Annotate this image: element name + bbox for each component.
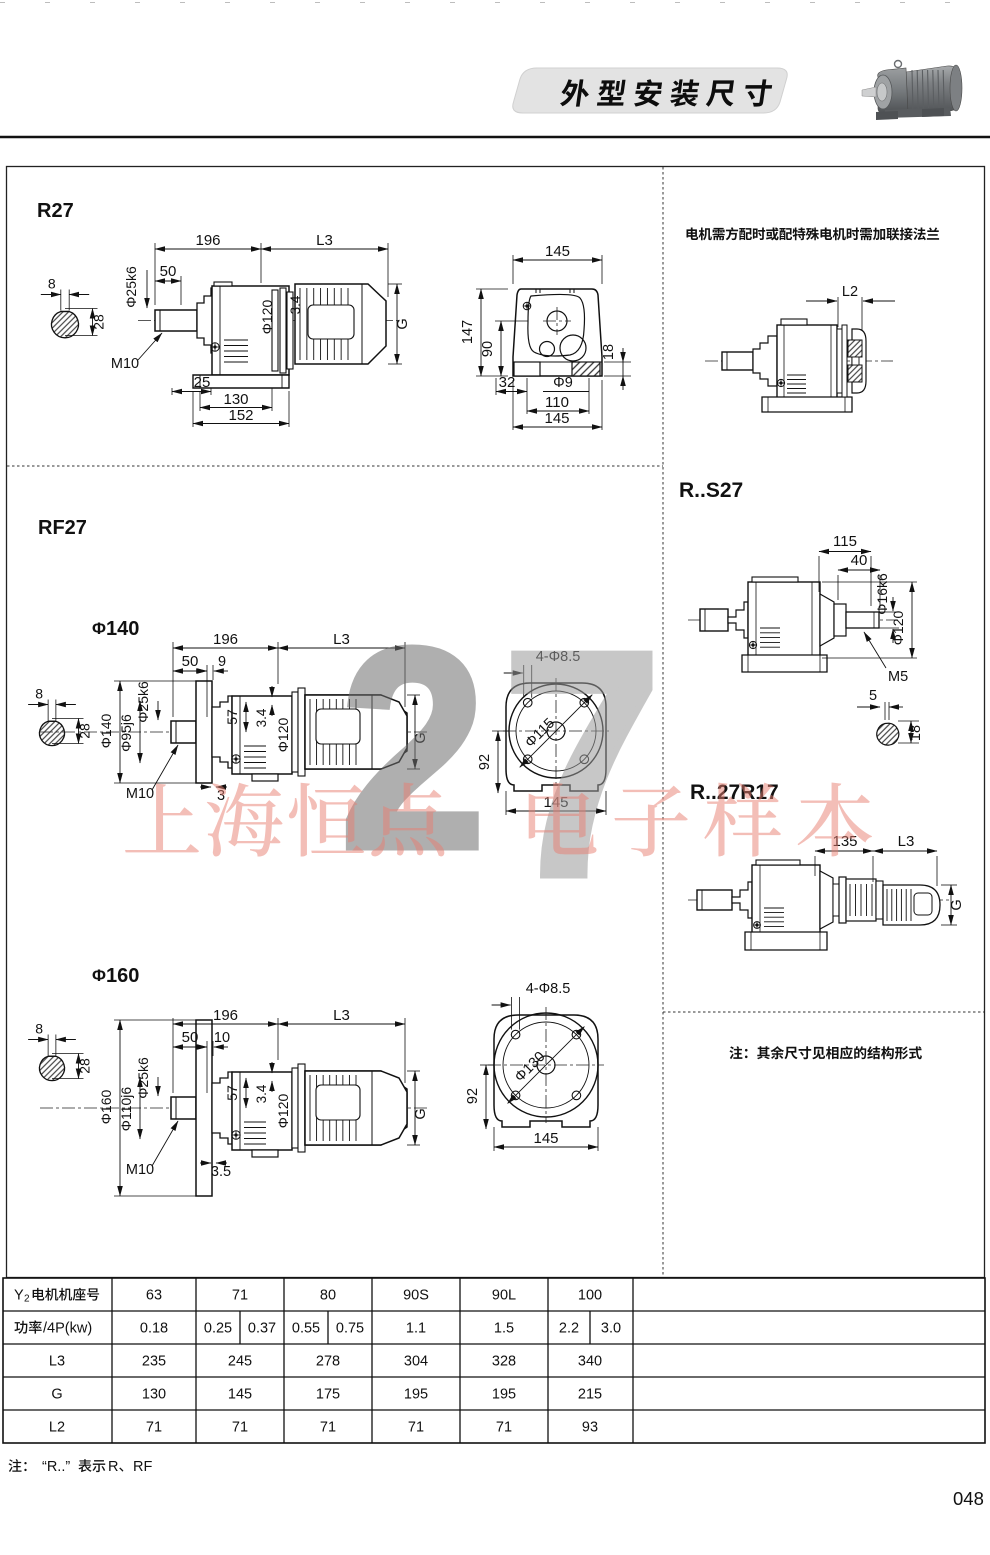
svg-text:3.5: 3.5	[211, 1164, 231, 1180]
svg-text:195: 195	[492, 1387, 516, 1403]
svg-text:115: 115	[833, 533, 857, 550]
svg-text:M10: M10	[111, 356, 139, 372]
svg-text:130: 130	[142, 1387, 166, 1403]
svg-text:L2: L2	[49, 1420, 65, 1436]
svg-text:63: 63	[146, 1288, 162, 1304]
svg-text:Φ25k6: Φ25k6	[135, 681, 151, 723]
svg-text:/4P(kw): /4P(kw)	[43, 1321, 92, 1337]
svg-text:145: 145	[544, 410, 569, 427]
svg-text:0.75: 0.75	[336, 1321, 364, 1337]
svg-text:10: 10	[214, 1030, 230, 1046]
svg-text:1.5: 1.5	[494, 1321, 514, 1337]
svg-text:Φ120: Φ120	[890, 611, 906, 646]
svg-text:Φ120: Φ120	[275, 1094, 291, 1129]
svg-text:L3: L3	[333, 1007, 350, 1024]
svg-text:8: 8	[48, 276, 56, 292]
svg-text:195: 195	[404, 1387, 428, 1403]
svg-text:304: 304	[404, 1354, 428, 1370]
svg-text:57: 57	[224, 709, 240, 725]
svg-text:Φ25k6: Φ25k6	[135, 1057, 151, 1099]
svg-text:2: 2	[24, 1294, 30, 1305]
svg-text:R27: R27	[37, 200, 74, 222]
svg-text:18: 18	[908, 725, 924, 741]
svg-text:71: 71	[146, 1420, 162, 1436]
svg-text:50: 50	[160, 263, 177, 280]
svg-text:340: 340	[578, 1354, 602, 1370]
svg-text:7: 7	[502, 585, 662, 944]
svg-text:92: 92	[465, 1088, 481, 1104]
svg-text:196: 196	[213, 1007, 238, 1024]
svg-text:M10: M10	[126, 1162, 154, 1178]
svg-text:3.4: 3.4	[254, 1084, 269, 1103]
svg-text:278: 278	[316, 1354, 340, 1370]
svg-text:R..S27: R..S27	[679, 479, 743, 502]
svg-text:0.18: 0.18	[140, 1321, 168, 1337]
svg-text:5: 5	[869, 688, 877, 704]
svg-text:196: 196	[213, 631, 238, 648]
svg-text:28: 28	[77, 723, 93, 739]
svg-text:28: 28	[77, 1058, 93, 1074]
svg-text:28: 28	[91, 314, 107, 330]
svg-text:3.4: 3.4	[254, 708, 269, 727]
svg-text:152: 152	[228, 407, 253, 424]
svg-text:1.1: 1.1	[406, 1321, 426, 1337]
svg-text:R、RF: R、RF	[108, 1459, 152, 1475]
svg-text:Φ25k6: Φ25k6	[123, 266, 139, 308]
svg-text:8: 8	[35, 1021, 43, 1037]
svg-text:G: G	[413, 1108, 429, 1119]
svg-text:196: 196	[195, 232, 220, 249]
svg-text:215: 215	[578, 1387, 602, 1403]
svg-text:328: 328	[492, 1354, 516, 1370]
svg-text:25: 25	[194, 374, 211, 391]
svg-text:0.25: 0.25	[204, 1321, 232, 1337]
svg-text:90: 90	[480, 341, 496, 357]
svg-text:8: 8	[35, 686, 43, 702]
svg-text:RF27: RF27	[38, 517, 87, 539]
svg-text:110: 110	[545, 394, 569, 411]
svg-text:L2: L2	[842, 284, 858, 300]
svg-text:Φ: Φ	[92, 619, 106, 638]
svg-text:Φ: Φ	[92, 966, 106, 985]
svg-text:L3: L3	[49, 1354, 65, 1370]
svg-text:175: 175	[316, 1387, 340, 1403]
svg-text:Φ16k6: Φ16k6	[874, 573, 890, 615]
svg-text:71: 71	[232, 1288, 248, 1304]
svg-text:145: 145	[545, 243, 570, 260]
svg-text:“R..”: “R..”	[42, 1459, 70, 1475]
svg-text:Φ120: Φ120	[259, 300, 275, 335]
svg-text:M5: M5	[888, 669, 908, 685]
svg-text:G: G	[51, 1387, 62, 1403]
svg-text:Φ120: Φ120	[275, 718, 291, 753]
svg-text:2.2: 2.2	[559, 1321, 579, 1337]
svg-text:71: 71	[232, 1420, 248, 1436]
svg-text:18: 18	[601, 344, 617, 360]
svg-text:93: 93	[582, 1420, 598, 1436]
svg-text:235: 235	[142, 1354, 166, 1370]
svg-text:G: G	[949, 899, 965, 910]
svg-text:40: 40	[851, 552, 868, 569]
svg-text:Φ140: Φ140	[98, 714, 114, 749]
svg-text:3.4: 3.4	[288, 295, 303, 314]
svg-text:140: 140	[106, 618, 139, 640]
svg-text:71: 71	[320, 1420, 336, 1436]
svg-text:50: 50	[182, 1029, 199, 1046]
svg-text:147: 147	[460, 320, 476, 344]
svg-text:9: 9	[218, 654, 226, 670]
svg-text:3.0: 3.0	[601, 1321, 621, 1337]
svg-text:71: 71	[496, 1420, 512, 1436]
svg-text:71: 71	[408, 1420, 424, 1436]
svg-text:50: 50	[182, 653, 199, 670]
svg-text:L3: L3	[898, 833, 915, 850]
svg-text:100: 100	[578, 1288, 602, 1304]
svg-text:0.55: 0.55	[292, 1321, 320, 1337]
svg-text:M10: M10	[126, 786, 154, 802]
svg-text:L3: L3	[316, 232, 333, 249]
svg-text:80: 80	[320, 1288, 336, 1304]
svg-text:Φ160: Φ160	[98, 1090, 114, 1125]
svg-text:4-Φ8.5: 4-Φ8.5	[526, 981, 571, 997]
svg-text:Φ9: Φ9	[553, 375, 573, 391]
svg-text:160: 160	[106, 965, 139, 987]
svg-text:2: 2	[340, 590, 486, 908]
svg-text:245: 245	[228, 1354, 252, 1370]
svg-text:57: 57	[224, 1085, 240, 1101]
svg-text:048: 048	[953, 1488, 984, 1509]
svg-text:145: 145	[533, 1130, 558, 1147]
svg-text:0.37: 0.37	[248, 1321, 276, 1337]
svg-text:130: 130	[223, 391, 248, 408]
svg-text:90S: 90S	[403, 1288, 429, 1304]
svg-text:Y: Y	[14, 1288, 24, 1304]
svg-text:G: G	[395, 318, 411, 329]
svg-text:145: 145	[228, 1387, 252, 1403]
svg-text:90L: 90L	[492, 1288, 516, 1304]
